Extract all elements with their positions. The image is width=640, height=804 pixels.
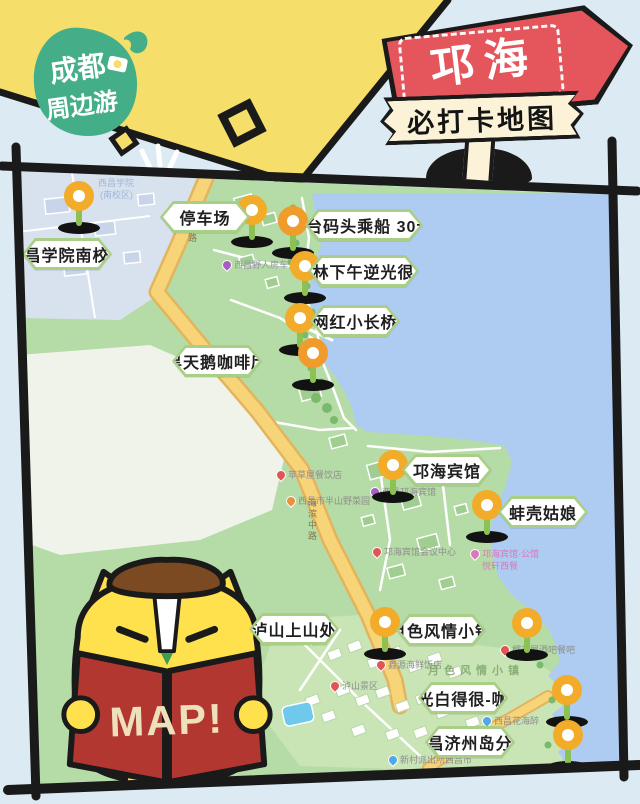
tag-border: 蚌壳姑娘	[498, 496, 588, 528]
tag-border: 西昌济州岛分岛	[425, 726, 515, 758]
tag-label: 月光白得很-咖啡	[421, 685, 505, 711]
poster: 成都 周边游	[0, 0, 640, 804]
tag-label: 小树林下午逆光很好看	[311, 258, 416, 284]
map-tag-hotel[interactable]: 邛海宾馆	[402, 454, 492, 486]
tag-border: 月光白得很-咖啡	[418, 682, 508, 714]
map-tag-swan-cafe[interactable]: 黑天鹅咖啡厅	[172, 345, 262, 377]
burst-icon	[142, 146, 177, 168]
tag-label: 月色风情小镇	[399, 617, 483, 643]
map-tag-moonlight[interactable]: 月光白得很-咖啡	[418, 682, 508, 714]
pin-ring-icon	[552, 675, 582, 705]
map-tag-boat[interactable]: 钓鱼台码头乘船 30元/人	[305, 209, 423, 241]
logo-swirl	[124, 32, 147, 54]
tag-label: 泸山上山处	[252, 616, 336, 642]
tag-border: 泸山上山处	[249, 613, 339, 645]
tag-border: 小树林下午逆光很好看	[308, 255, 419, 287]
tag-label: 蚌壳姑娘	[501, 499, 585, 525]
map-tag-grove[interactable]: 小树林下午逆光很好看	[308, 255, 419, 287]
pin-ring-icon	[278, 206, 308, 236]
map-tag-clam[interactable]: 蚌壳姑娘	[498, 496, 588, 528]
pin-ring-icon	[553, 720, 583, 750]
tag-border: 停车场	[160, 201, 250, 233]
map-tag-bridge[interactable]: 网红小长桥	[310, 305, 400, 337]
tag-border: 月色风情小镇	[396, 614, 486, 646]
tag-border: 邛海宾馆	[402, 454, 492, 486]
tag-label: 网红小长桥	[313, 308, 397, 334]
tag-border: 网红小长桥	[310, 305, 400, 337]
tag-label: 黑天鹅咖啡厅	[175, 348, 259, 374]
tag-border: 西昌学院南校区	[22, 238, 112, 270]
pin-ring-icon	[64, 181, 94, 211]
map-tag-lushan[interactable]: 泸山上山处	[249, 613, 339, 645]
sparkle-fill	[224, 105, 261, 142]
map-tag-jeju[interactable]: 西昌济州岛分岛	[425, 726, 515, 758]
tag-label: 钓鱼台码头乘船 30元/人	[308, 212, 420, 238]
tag-label: 西昌学院南校区	[25, 241, 109, 267]
tag-border: 钓鱼台码头乘船 30元/人	[305, 209, 423, 241]
map-tag-parking[interactable]: 停车场	[160, 201, 250, 233]
sign-banner: 必打卡地图	[379, 90, 585, 145]
brand-logo: 成都 周边游	[20, 16, 150, 146]
pin-ring-icon	[512, 608, 542, 638]
map-tag-moon-town[interactable]: 月色风情小镇	[396, 614, 486, 646]
pin-ring-icon	[298, 338, 328, 368]
tag-border: 黑天鹅咖啡厅	[172, 345, 262, 377]
tag-label: 西昌济州岛分岛	[428, 729, 512, 755]
sign-banner-text: 必打卡地图	[383, 95, 580, 142]
tag-label: 停车场	[163, 204, 247, 230]
map-tag-campus[interactable]: 西昌学院南校区	[22, 238, 112, 270]
tag-label: 邛海宾馆	[405, 457, 489, 483]
